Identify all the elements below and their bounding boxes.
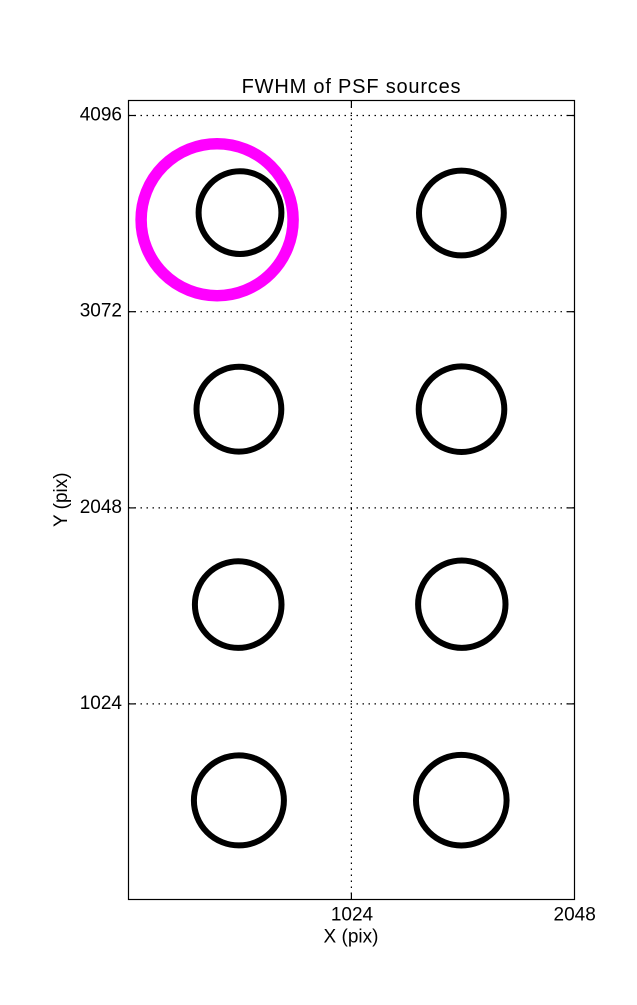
svg-text:1024: 1024 [331, 905, 374, 926]
svg-text:FWHM of PSF sources: FWHM of PSF sources [242, 76, 462, 98]
svg-text:4096: 4096 [80, 105, 122, 126]
svg-text:Y (pix): Y (pix) [51, 472, 72, 527]
svg-text:2048: 2048 [554, 905, 596, 926]
svg-text:1024: 1024 [80, 693, 123, 714]
svg-text:3072: 3072 [80, 301, 122, 322]
svg-text:X (pix): X (pix) [324, 926, 379, 947]
svg-text:2048: 2048 [80, 497, 122, 518]
